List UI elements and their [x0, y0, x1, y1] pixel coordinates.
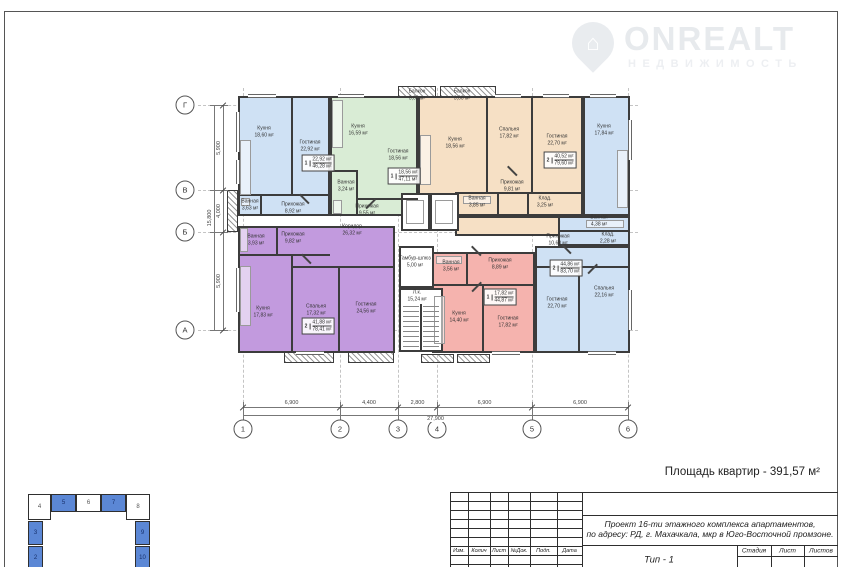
titleblock-line	[450, 519, 582, 520]
apartment-stamp: 118,56 м²47,11 м²	[388, 168, 421, 185]
room-label: Балкон3,60 м²	[409, 89, 426, 102]
window	[495, 94, 521, 98]
room-area: 24,56 м²	[356, 308, 377, 315]
sheet-frame-top	[4, 11, 838, 12]
balcony-slab	[421, 354, 454, 363]
room-area: 26,32 м²	[342, 230, 362, 237]
dimension-value: 6,900	[572, 400, 588, 406]
window	[236, 268, 240, 312]
fixture	[240, 140, 251, 195]
window	[628, 290, 632, 330]
axis-row-Б: Б	[176, 223, 195, 242]
window	[588, 351, 616, 355]
titleblock-line	[450, 537, 582, 538]
room-area: 16,59 м²	[348, 130, 367, 137]
window	[543, 94, 569, 98]
dimension-total: 15,800	[207, 208, 213, 227]
dimension-value: 4,400	[361, 400, 377, 406]
axis-column-6: 6	[619, 420, 638, 439]
room-area: 9,55 м²	[355, 210, 378, 217]
partition-wall	[558, 230, 630, 232]
titleblock-col-3: №Док.	[510, 548, 527, 554]
axis-row-Г: Г	[176, 96, 195, 115]
stairs-divider	[420, 304, 422, 351]
room-name: Гостиная	[356, 302, 377, 309]
room-label: Гостиная18,56 м²	[388, 149, 409, 162]
room-area: 14,40 м²	[449, 317, 468, 324]
apartment-total-area: 78,41 м²	[312, 327, 331, 333]
apartment-stamp: 244,86 м²83,70 м²	[550, 260, 583, 277]
room-name: Ванная	[241, 199, 258, 206]
room-area: 22,70 м²	[547, 303, 568, 310]
room-name: Ванная	[247, 234, 264, 241]
room-name: Балкон	[409, 89, 426, 96]
room-area: 18,60 м²	[254, 132, 273, 139]
titleblock-line	[450, 564, 582, 565]
dimension-value: 5,900	[216, 140, 222, 156]
partition-wall	[238, 254, 330, 256]
room-area: 2,28 м²	[600, 238, 616, 245]
window	[492, 351, 520, 355]
apartment-stamp: 117,82 м²44,87 м²	[484, 289, 517, 306]
room-label: Ванная3,85 м²	[468, 196, 485, 209]
room-label: Гостиная22,70 м²	[547, 134, 568, 147]
apartment-living-area: 44,86 м²	[560, 262, 579, 269]
apartment-living-area: 41,88 м²	[312, 320, 331, 327]
titleblock-stage-col-1: Лист	[779, 548, 796, 555]
room-label: Спальня17,32 м²	[306, 304, 326, 317]
dimension-value: 6,900	[284, 400, 300, 406]
partition-wall	[497, 192, 499, 218]
room-label: Кухня18,56 м²	[445, 137, 464, 150]
titleblock-line	[450, 492, 838, 493]
room-label: Ванная3,63 м²	[241, 199, 258, 212]
window	[248, 94, 276, 98]
room-label: Клад.2,28 м²	[600, 232, 616, 245]
room-name: Прихожая	[500, 180, 523, 187]
dimension-value: 2,800	[410, 400, 426, 406]
room-area: 5,00 м²	[399, 262, 431, 269]
room-area: 15,24 м²	[407, 296, 426, 303]
room-name: Кухня	[253, 306, 272, 313]
room-area: 3,93 м²	[247, 240, 264, 247]
room-label: Коридор26,32 м²	[342, 224, 362, 237]
house-icon: ⌂	[572, 22, 614, 64]
room-area: 8,92 м²	[281, 208, 304, 215]
room-label: Гостиная22,92 м²	[300, 140, 321, 153]
axis-column-5: 5	[523, 420, 542, 439]
apartment-total-area: 46,28 м²	[312, 164, 331, 170]
room-area: 3,63 м²	[241, 205, 258, 212]
room-name: Клад.	[600, 232, 616, 239]
room-area: 18,56 м²	[445, 143, 464, 150]
room-area: 9,81 м²	[500, 186, 523, 193]
titleblock-line	[582, 492, 583, 567]
logo-tagline: НЕДВИЖИМОСТЬ	[628, 58, 803, 70]
apartment-total-area: 47,11 м²	[398, 177, 417, 183]
keyplan-cell-7: 7	[101, 494, 126, 512]
dimension-value: 4,000	[216, 203, 222, 219]
fixture	[420, 135, 431, 185]
titleblock-type-label: Тип - 1	[644, 555, 674, 566]
room-area: 3,60 м²	[454, 95, 471, 102]
titleblock-project-line2: по адресу: РД, г. Махачкала, мкр в Юго-В…	[587, 529, 834, 539]
room-name: Ванная	[468, 196, 485, 203]
apartment-total-area: 44,87 м²	[494, 298, 513, 304]
logo-pin-icon: ⌂	[563, 13, 622, 72]
apartment-number: 2	[547, 157, 553, 163]
room-name: Кухня	[348, 124, 367, 131]
room-area: 17,83 м²	[253, 312, 272, 319]
room-label: Прихожая9,81 м²	[500, 180, 523, 193]
dimension-extension	[210, 105, 228, 106]
keyplan-cell-4: 4	[28, 494, 51, 520]
drawing-sheet: ⌂ ONREALT НЕДВИЖИМОСТЬ Площадь квартир -…	[0, 0, 843, 567]
dimension-value: 5,900	[216, 273, 222, 289]
partition-wall	[338, 268, 340, 353]
room-name: Гостиная	[388, 149, 409, 156]
apartment-stamp: 241,88 м²78,41 м²	[302, 318, 335, 335]
room-name: Клад.	[537, 196, 553, 203]
window	[296, 351, 324, 355]
room-label: Ванная3,24 м²	[337, 180, 354, 193]
titleblock-col-0: Изм.	[453, 548, 465, 554]
room-name: Гостиная	[300, 140, 321, 147]
room-name: Прихожая	[546, 234, 569, 241]
room-area: 3,60 м²	[409, 95, 426, 102]
room-area: 17,84 м²	[594, 130, 613, 137]
room-area: 22,92 м²	[300, 146, 321, 153]
room-area: 22,70 м²	[547, 140, 568, 147]
apartment-living-area: 18,56 м²	[398, 170, 417, 177]
room-name: Ванная	[337, 180, 354, 187]
apartment-total-area: 83,70 м²	[560, 269, 579, 275]
fixture	[617, 150, 628, 208]
apartment-living-area: 22,92 м²	[312, 157, 331, 164]
room-label: Ванная3,56 м²	[442, 260, 459, 273]
room-name: Коридор	[342, 224, 362, 231]
keyplan-cell-8: 8	[126, 494, 150, 520]
room-name: Спальня	[306, 304, 326, 311]
room-label: Спальня22,16 м²	[594, 286, 614, 299]
partition-wall	[291, 96, 293, 196]
titleblock-stage-col-2: Листов	[809, 548, 833, 555]
window	[236, 160, 240, 184]
apartment-number: 2	[305, 323, 311, 329]
axis-column-4: 4	[428, 420, 447, 439]
sheet-frame-right	[837, 11, 838, 567]
stairs-flight-left	[403, 306, 419, 349]
partition-wall	[578, 266, 580, 353]
partition-wall	[260, 194, 262, 216]
room-name: Кухня	[254, 126, 273, 133]
room-label: Кухня18,60 м²	[254, 126, 273, 139]
room-area: 17,82 м²	[498, 322, 519, 329]
partition-wall	[291, 254, 293, 353]
partition-wall	[527, 192, 529, 218]
room-label: Кухня14,40 м²	[449, 311, 468, 324]
room-name: Прихожая	[355, 204, 378, 211]
room-area: 3,25 м²	[537, 202, 553, 209]
balcony-slab	[227, 190, 238, 232]
room-name: Кухня	[594, 124, 613, 131]
partition-wall	[276, 226, 278, 256]
room-area: 10,68 м²	[546, 240, 569, 247]
titleblock-col-1: Колич	[471, 548, 486, 554]
apartment-number: 2	[553, 265, 559, 271]
partition-wall	[531, 96, 533, 194]
room-name: Гостиная	[498, 316, 519, 323]
room-label: Л.к.15,24 м²	[407, 290, 426, 303]
dimension-extension	[210, 330, 228, 331]
dimension-total: 27,900	[426, 416, 445, 422]
keyplan-cell-10: 10	[135, 546, 150, 567]
titleblock-line	[582, 515, 838, 516]
room-name: Тамбур-шлюз	[399, 256, 431, 263]
room-name: Спальня	[594, 286, 614, 293]
titleblock-line	[450, 528, 582, 529]
room-label: Ванная4,38 м²	[590, 215, 607, 228]
room-area: 8,89 м²	[488, 264, 511, 271]
room-label: Прихожая9,82 м²	[281, 232, 304, 245]
titleblock-stage-col-0: Стадия	[742, 548, 766, 555]
fixture	[406, 200, 424, 224]
dimension-extension	[210, 232, 228, 233]
room-area: 17,32 м²	[306, 310, 326, 317]
room-name: Прихожая	[281, 232, 304, 239]
room-area: 3,85 м²	[468, 202, 485, 209]
dimension-extension	[210, 190, 228, 191]
room-name: Гостиная	[547, 297, 568, 304]
room-label: Гостиная24,56 м²	[356, 302, 377, 315]
room-name: Ванная	[590, 215, 607, 222]
balcony-slab	[457, 354, 490, 363]
room-label: Кухня17,83 м²	[253, 306, 272, 319]
window	[628, 120, 632, 160]
window	[590, 94, 616, 98]
room-label: Гостиная22,70 м²	[547, 297, 568, 310]
titleblock-col-5: Дата	[562, 548, 577, 554]
room-label: Прихожая9,55 м²	[355, 204, 378, 217]
room-name: Прихожая	[281, 202, 304, 209]
room-label: Прихожая8,92 м²	[281, 202, 304, 215]
keyplan-cell-5: 5	[51, 494, 76, 512]
room-label: Клад.3,25 м²	[537, 196, 553, 209]
sheet-frame-left	[4, 11, 5, 567]
axis-column-3: 3	[389, 420, 408, 439]
apartment-number: 1	[391, 173, 397, 179]
room-area: 22,16 м²	[594, 292, 614, 299]
room-label: Прихожая8,89 м²	[488, 258, 511, 271]
room-area: 3,56 м²	[442, 266, 459, 273]
partition-wall	[238, 194, 330, 196]
room-name: Кухня	[449, 311, 468, 318]
fixture	[240, 266, 251, 326]
room-label: Кухня17,84 м²	[594, 124, 613, 137]
room-name: Ванная	[442, 260, 459, 267]
keyplan-cell-3: 3	[28, 521, 43, 545]
titleblock-line	[450, 501, 582, 502]
room-name: Прихожая	[488, 258, 511, 265]
partition-wall	[466, 252, 468, 286]
room-area: 3,24 м²	[337, 186, 354, 193]
logo-brand: ONREALT	[624, 20, 795, 58]
room-label: Кухня16,59 м²	[348, 124, 367, 137]
room-label: Прихожая10,68 м²	[546, 234, 569, 247]
apartment-total-area: 79,60 м²	[554, 161, 573, 167]
room-name: Спальня	[499, 127, 519, 134]
keyplan-cell-9: 9	[135, 521, 150, 545]
room-label: Тамбур-шлюз5,00 м²	[399, 256, 431, 269]
titleblock-line	[582, 545, 838, 546]
apartment-living-area: 40,52 м²	[554, 154, 573, 161]
dimension-value: 6,900	[477, 400, 493, 406]
room-area: 17,82 м²	[499, 133, 519, 140]
window	[338, 94, 364, 98]
balcony-slab	[348, 352, 394, 363]
titleblock-line	[450, 555, 582, 556]
apartment-living-area: 17,82 м²	[494, 291, 513, 298]
room-area: 4,38 м²	[590, 221, 607, 228]
axis-row-В: В	[176, 181, 195, 200]
room-name: Балкон	[454, 89, 471, 96]
partition-wall	[486, 96, 488, 194]
titleblock-line	[450, 510, 582, 511]
axis-row-А: А	[176, 321, 195, 340]
dimension-line	[223, 105, 224, 330]
window	[236, 112, 240, 152]
keyplan-cell-6: 6	[76, 494, 101, 512]
titleblock-col-4: Подп.	[536, 548, 551, 554]
fixture	[435, 200, 453, 224]
titleblock-line	[737, 556, 838, 557]
dimension-line	[214, 105, 215, 330]
room-area: 9,82 м²	[281, 238, 304, 245]
room-label: Спальня17,82 м²	[499, 127, 519, 140]
room-name: Кухня	[445, 137, 464, 144]
titleblock-col-2: Лист	[492, 548, 506, 554]
titleblock-project-line1: Проект 16-ти этажного комплекса апартаме…	[605, 519, 816, 529]
apartment-number: 1	[305, 160, 311, 166]
room-label: Ванная3,93 м²	[247, 234, 264, 247]
apartment-stamp: 122,92 м²46,28 м²	[302, 155, 335, 172]
room-label: Балкон3,60 м²	[454, 89, 471, 102]
room-label: Гостиная17,82 м²	[498, 316, 519, 329]
fixture	[333, 200, 342, 214]
titleblock-line	[450, 546, 582, 547]
room-area: 18,56 м²	[388, 155, 409, 162]
fixture	[332, 100, 343, 148]
axis-column-2: 2	[331, 420, 350, 439]
apartments-area-note: Площадь квартир - 391,57 м²	[540, 466, 820, 478]
partition-wall	[291, 266, 395, 268]
stairs-flight-right	[423, 306, 439, 349]
keyplan-cell-2: 2	[28, 546, 43, 567]
room-name: Гостиная	[547, 134, 568, 141]
apartment-number: 1	[487, 294, 493, 300]
axis-column-1: 1	[234, 420, 253, 439]
apartment-stamp: 240,52 м²79,60 м²	[544, 152, 577, 169]
